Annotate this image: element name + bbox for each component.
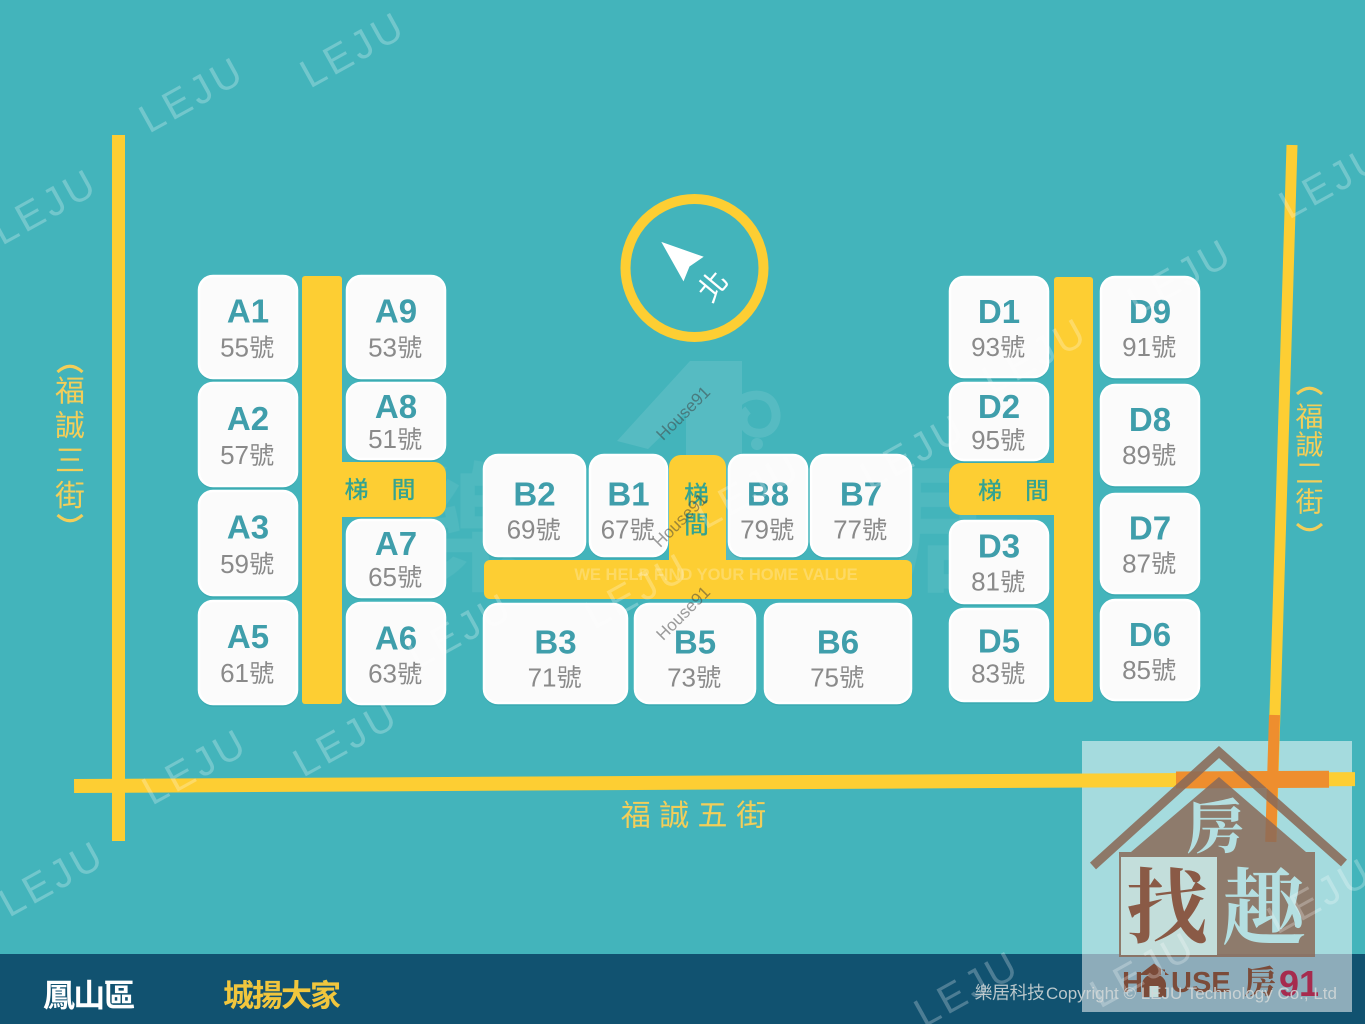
svg-text:D5: D5 xyxy=(978,622,1020,659)
svg-text:B6: B6 xyxy=(817,624,859,661)
svg-text:D1: D1 xyxy=(978,293,1020,330)
svg-text:D8: D8 xyxy=(1129,401,1171,438)
svg-text:WE HELP FIND YOUR HOME VALUE: WE HELP FIND YOUR HOME VALUE xyxy=(574,566,857,584)
svg-text:53: 53 xyxy=(368,332,397,362)
svg-text:A5: A5 xyxy=(227,618,269,655)
svg-text:59: 59 xyxy=(220,549,249,579)
svg-text:81: 81 xyxy=(971,567,1000,597)
svg-text:D7: D7 xyxy=(1129,510,1171,547)
svg-text:61: 61 xyxy=(220,658,249,688)
svg-text:A9: A9 xyxy=(375,293,417,330)
svg-text:75: 75 xyxy=(810,662,839,692)
svg-text:B1: B1 xyxy=(607,475,649,512)
svg-text:73: 73 xyxy=(667,662,696,692)
svg-text:B2: B2 xyxy=(513,475,555,512)
svg-text:A3: A3 xyxy=(227,508,269,545)
svg-text:89: 89 xyxy=(1122,440,1151,470)
svg-text:A8: A8 xyxy=(375,388,417,425)
svg-text:D3: D3 xyxy=(978,528,1020,565)
svg-text:Copyright © LEJU Technology Co: Copyright © LEJU Technology Co., Ltd xyxy=(1046,984,1337,1003)
svg-text:79: 79 xyxy=(740,515,769,545)
svg-text:69: 69 xyxy=(507,515,536,545)
svg-text:D6: D6 xyxy=(1129,616,1171,653)
svg-text:A1: A1 xyxy=(227,293,269,330)
svg-text:91: 91 xyxy=(1122,332,1151,362)
svg-text:A2: A2 xyxy=(227,400,269,437)
svg-text:55: 55 xyxy=(220,332,249,362)
svg-text:51: 51 xyxy=(368,424,397,454)
svg-text:A7: A7 xyxy=(375,525,417,562)
svg-text:65: 65 xyxy=(368,562,397,592)
svg-text:67: 67 xyxy=(601,515,630,545)
svg-text:B3: B3 xyxy=(534,624,576,661)
svg-text:83: 83 xyxy=(971,658,1000,688)
svg-text:71: 71 xyxy=(528,662,557,692)
svg-text:95: 95 xyxy=(971,425,1000,455)
svg-text:77: 77 xyxy=(833,515,862,545)
svg-text:85: 85 xyxy=(1122,655,1151,685)
svg-text:57: 57 xyxy=(220,440,249,470)
svg-text:87: 87 xyxy=(1122,548,1151,578)
svg-text:63: 63 xyxy=(368,659,397,689)
